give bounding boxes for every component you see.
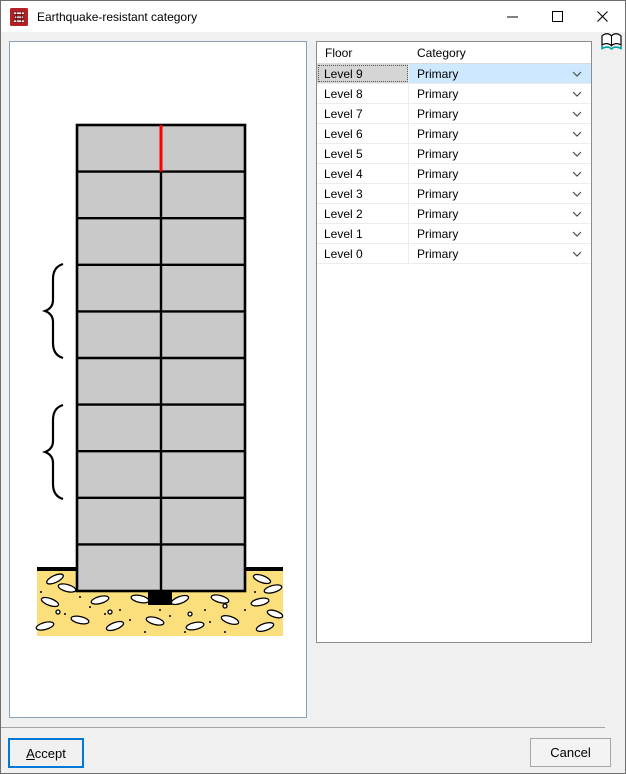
category-dropdown[interactable]: Primary (409, 224, 591, 243)
category-value: Primary (417, 247, 458, 261)
category-dropdown[interactable]: Primary (409, 84, 591, 103)
caption-buttons (490, 1, 625, 32)
category-dropdown[interactable]: Primary (409, 204, 591, 223)
table-row[interactable]: Level 0Primary (317, 244, 591, 264)
category-dropdown[interactable]: Primary (409, 244, 591, 263)
table-row[interactable]: Level 1Primary (317, 224, 591, 244)
table-row[interactable]: Level 7Primary (317, 104, 591, 124)
category-dropdown[interactable]: Primary (409, 64, 591, 83)
chevron-down-icon (572, 251, 582, 257)
floor-category-table: Floor Category Level 9PrimaryLevel 8Prim… (316, 41, 592, 643)
accept-button-label: Accept (26, 746, 66, 761)
table-row[interactable]: Level 6Primary (317, 124, 591, 144)
category-dropdown[interactable]: Primary (409, 104, 591, 123)
close-icon (597, 11, 608, 22)
minimize-button[interactable] (490, 1, 535, 32)
floor-cell[interactable]: Level 7 (317, 104, 409, 123)
category-dropdown[interactable]: Primary (409, 164, 591, 183)
close-button[interactable] (580, 1, 625, 32)
chevron-down-icon (572, 91, 582, 97)
floor-group-brace-lower (45, 405, 63, 499)
floor-cell[interactable]: Level 9 (317, 64, 409, 83)
help-button[interactable] (600, 31, 623, 51)
category-value: Primary (417, 147, 458, 161)
category-value: Primary (417, 127, 458, 141)
maximize-button[interactable] (535, 1, 580, 32)
table-row[interactable]: Level 2Primary (317, 204, 591, 224)
titlebar: Earthquake-resistant category (1, 1, 625, 32)
cancel-button-label: Cancel (550, 745, 590, 760)
footer-separator (1, 727, 605, 728)
app-icon (10, 8, 28, 26)
category-value: Primary (417, 107, 458, 121)
table-header: Floor Category (317, 42, 591, 64)
category-dropdown[interactable]: Primary (409, 144, 591, 163)
category-value: Primary (417, 227, 458, 241)
chevron-down-icon (572, 231, 582, 237)
category-dropdown[interactable]: Primary (409, 184, 591, 203)
category-value: Primary (417, 167, 458, 181)
open-book-icon (600, 31, 623, 51)
chevron-down-icon (572, 211, 582, 217)
foundation-block (148, 591, 172, 605)
chevron-down-icon (572, 191, 582, 197)
table-row[interactable]: Level 3Primary (317, 184, 591, 204)
dialog-window: Earthquake-resistant category (0, 0, 626, 774)
minimize-icon (507, 16, 518, 18)
category-value: Primary (417, 207, 458, 221)
chevron-down-icon (572, 171, 582, 177)
floor-cell[interactable]: Level 2 (317, 204, 409, 223)
chevron-down-icon (572, 71, 582, 77)
chevron-down-icon (572, 131, 582, 137)
chevron-down-icon (572, 151, 582, 157)
floor-cell[interactable]: Level 0 (317, 244, 409, 263)
building (77, 125, 245, 605)
maximize-icon (552, 11, 563, 22)
window-title: Earthquake-resistant category (37, 10, 197, 24)
floor-table-body: Level 9PrimaryLevel 8PrimaryLevel 7Prima… (317, 64, 591, 264)
floor-cell[interactable]: Level 8 (317, 84, 409, 103)
accept-button[interactable]: Accept (8, 738, 84, 768)
category-value: Primary (417, 87, 458, 101)
category-value: Primary (417, 67, 458, 81)
building-diagram (10, 42, 306, 717)
table-row[interactable]: Level 5Primary (317, 144, 591, 164)
floor-cell[interactable]: Level 5 (317, 144, 409, 163)
floor-group-brace-upper (45, 264, 63, 358)
floor-cell[interactable]: Level 1 (317, 224, 409, 243)
chevron-down-icon (572, 111, 582, 117)
floor-cell[interactable]: Level 3 (317, 184, 409, 203)
table-row[interactable]: Level 8Primary (317, 84, 591, 104)
column-header-floor: Floor (317, 46, 409, 60)
category-dropdown[interactable]: Primary (409, 124, 591, 143)
table-row[interactable]: Level 9Primary (317, 64, 591, 84)
floor-cell[interactable]: Level 4 (317, 164, 409, 183)
category-value: Primary (417, 187, 458, 201)
floor-cell[interactable]: Level 6 (317, 124, 409, 143)
table-row[interactable]: Level 4Primary (317, 164, 591, 184)
diagram-panel (9, 41, 307, 718)
column-header-category: Category (409, 46, 591, 60)
cancel-button[interactable]: Cancel (530, 738, 611, 767)
